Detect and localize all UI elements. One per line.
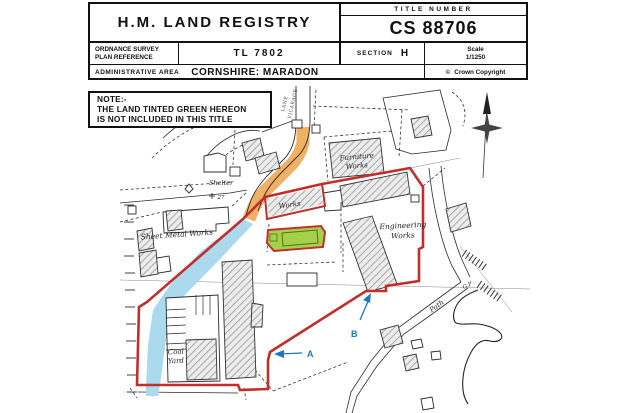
vicarage-lane-label-word1: VICARAGE [287,88,299,120]
marker-a-label: A [307,349,314,359]
os-plan-reference-label-line1: ORDNANCE SURVEY [95,46,159,54]
footpath [346,282,468,413]
scale-label: Scale [467,46,483,54]
note-line3: IS NOT INCLUDED IN THIS TITLE [97,115,270,125]
section-value: H [401,48,408,59]
title-number-value: CS 88706 [341,16,526,43]
engineering-works-label-line1: Engineering [378,220,426,232]
pond-outline [454,290,502,404]
fence-tick-marks [124,205,137,392]
north-arrow [471,92,503,178]
section-cell: SECTION H [341,43,425,65]
guide-post-label: G.P [462,281,474,291]
section-label: SECTION [357,50,393,57]
coal-yard-label-line1: Coal [168,348,184,357]
os-plan-reference-label-line2: PLAN REFERENCE [95,54,153,62]
marker-b-label: B [351,329,358,339]
green-tinted-plot [267,226,325,251]
land-registry-title-plan: VICARAGE LANE Furniture Works Works Engi… [0,0,620,413]
path-label: Path [427,298,445,314]
administrative-area-cell: ADMINISTRATIVE AREA CORNSHIRE: MARADON [90,65,425,80]
coal-yard-label-line2: Yard [168,357,185,366]
note-box: NOTE:- THE LAND TINTED GREEN HEREON IS N… [88,91,272,128]
os-plan-reference-label: ORDNANCE SURVEY PLAN REFERENCE [90,43,179,65]
scale-value: 1/1250 [466,54,485,62]
marker-b-arrow [360,293,371,320]
administrative-area-value: CORNSHIRE: MARADON [191,67,318,78]
vicarage-lane-label-word2: LANE [280,95,289,112]
os-plan-reference-value: TL 7802 [179,43,341,65]
marker-a-arrow [274,350,302,358]
benchmark-label: 27 [217,195,225,201]
scale-cell: Scale 1/1250 [425,43,526,65]
administrative-area-label: ADMINISTRATIVE AREA [95,69,179,76]
header-table: H.M. LAND REGISTRY TITLE NUMBER CS 88706… [88,2,528,80]
benchmark-symbol [209,193,215,199]
registry-title: H.M. LAND REGISTRY [90,4,341,43]
title-number-label: TITLE NUMBER [341,4,526,16]
engineering-works-label-line2: Works [391,230,415,240]
crown-copyright: © Crown Copyright [425,65,526,80]
copyright-text: Crown Copyright [454,69,505,76]
shelter-label: Shelter [209,179,234,187]
copyright-icon: © [446,69,451,76]
